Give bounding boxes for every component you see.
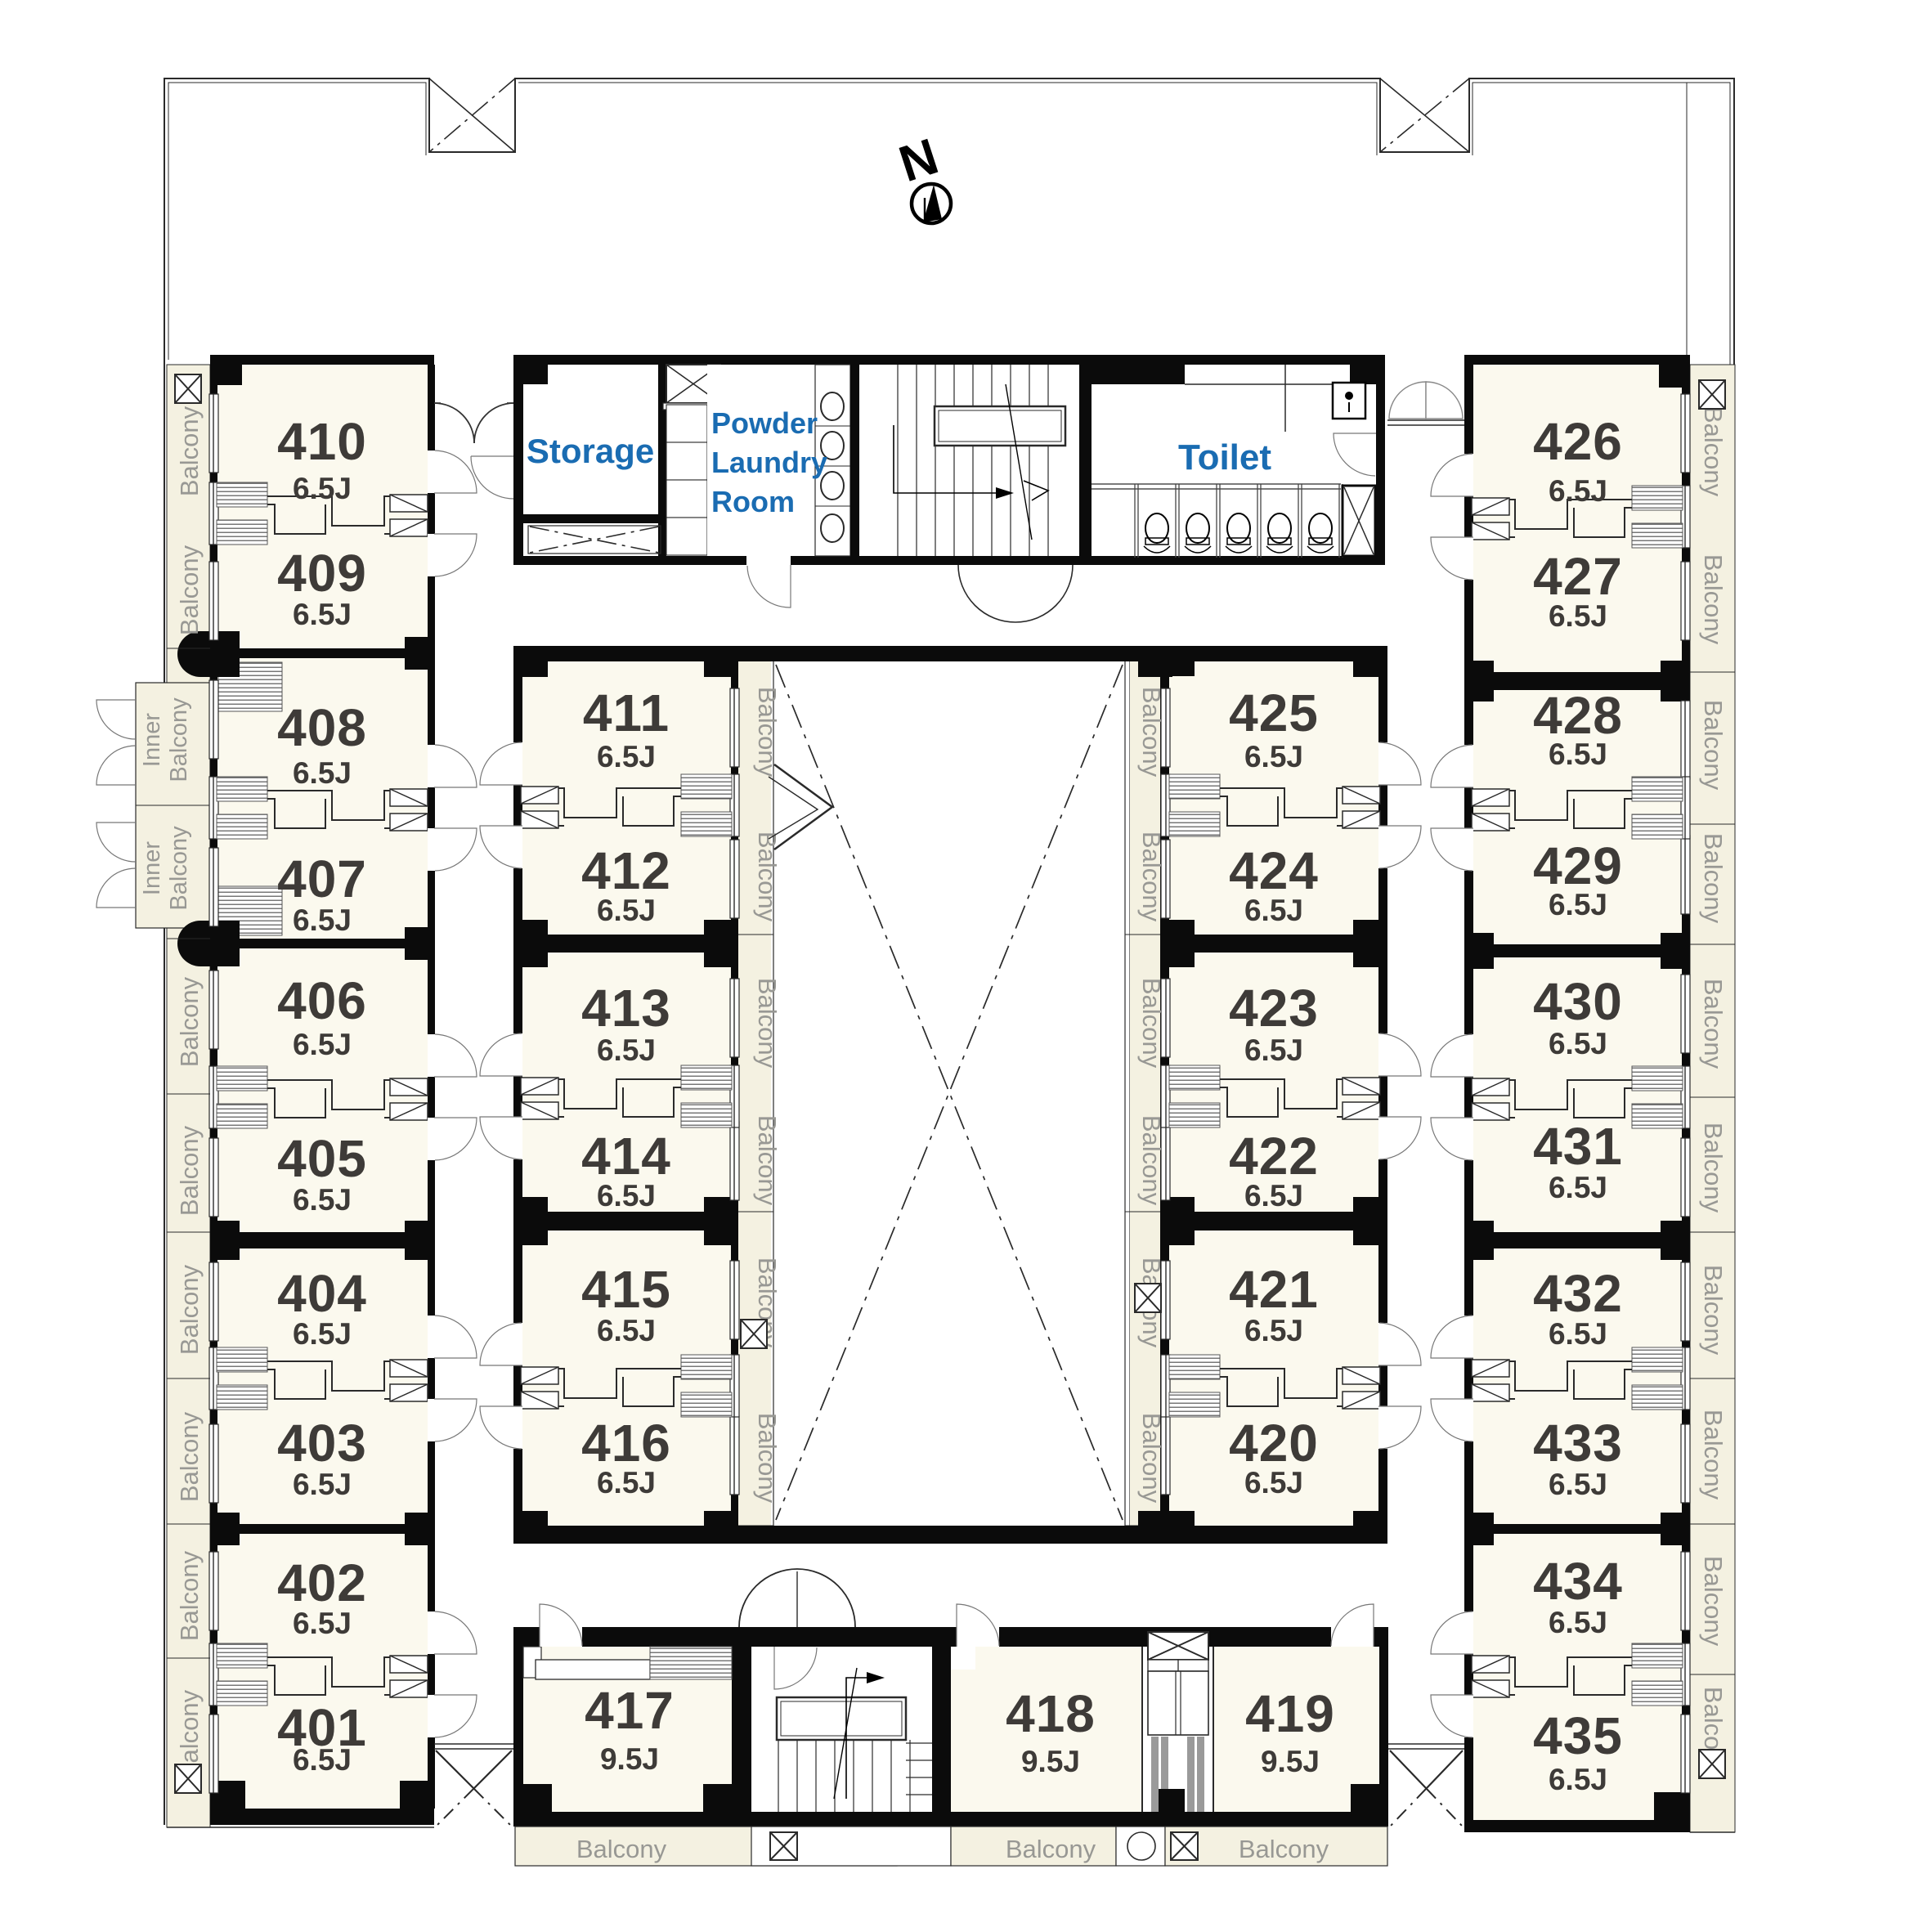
- svg-text:430: 430: [1533, 972, 1623, 1031]
- svg-text:Balcony: Balcony: [1699, 979, 1728, 1069]
- svg-text:Balcony: Balcony: [1699, 1123, 1728, 1213]
- svg-text:423: 423: [1229, 979, 1319, 1038]
- svg-text:Balcony: Balcony: [1699, 700, 1728, 791]
- svg-text:418: 418: [1006, 1684, 1096, 1743]
- svg-text:420: 420: [1229, 1414, 1319, 1473]
- svg-text:Inner: Inner: [139, 713, 165, 767]
- svg-text:407: 407: [277, 849, 367, 908]
- svg-text:426: 426: [1533, 412, 1623, 471]
- svg-text:6.5J: 6.5J: [1549, 888, 1607, 921]
- svg-text:6.5J: 6.5J: [1244, 740, 1303, 773]
- svg-text:Toilet: Toilet: [1178, 437, 1271, 477]
- svg-text:416: 416: [581, 1414, 671, 1473]
- svg-text:Balcony: Balcony: [175, 1125, 204, 1216]
- svg-text:429: 429: [1533, 836, 1623, 895]
- svg-text:6.5J: 6.5J: [597, 1179, 656, 1213]
- svg-text:6.5J: 6.5J: [293, 1468, 352, 1501]
- svg-text:Balcony: Balcony: [1137, 978, 1166, 1069]
- svg-text:405: 405: [277, 1129, 367, 1188]
- svg-text:424: 424: [1229, 841, 1319, 900]
- svg-text:Room: Room: [711, 485, 795, 518]
- svg-text:Balcony: Balcony: [1699, 1556, 1728, 1647]
- svg-text:Balcony: Balcony: [175, 406, 204, 496]
- svg-text:417: 417: [585, 1681, 675, 1740]
- svg-text:6.5J: 6.5J: [1549, 737, 1607, 771]
- svg-text:Balcony: Balcony: [1006, 1835, 1096, 1863]
- svg-text:431: 431: [1533, 1117, 1623, 1176]
- svg-text:6.5J: 6.5J: [597, 740, 656, 773]
- svg-text:6.5J: 6.5J: [1549, 474, 1607, 508]
- svg-text:434: 434: [1533, 1552, 1623, 1611]
- svg-text:425: 425: [1229, 684, 1319, 742]
- svg-text:6.5J: 6.5J: [1244, 1179, 1303, 1213]
- svg-text:406: 406: [277, 971, 367, 1030]
- svg-text:6.5J: 6.5J: [597, 1466, 656, 1499]
- svg-text:6.5J: 6.5J: [1549, 599, 1607, 633]
- svg-text:Balcony: Balcony: [166, 826, 192, 911]
- svg-text:Storage: Storage: [527, 432, 654, 470]
- svg-text:410: 410: [277, 412, 367, 471]
- svg-text:415: 415: [581, 1260, 671, 1319]
- svg-text:6.5J: 6.5J: [293, 1183, 352, 1217]
- svg-text:433: 433: [1533, 1414, 1623, 1473]
- svg-text:6.5J: 6.5J: [1549, 1763, 1607, 1796]
- svg-text:Balcony: Balcony: [1239, 1835, 1329, 1863]
- svg-text:Balcony: Balcony: [753, 978, 782, 1069]
- svg-text:6.5J: 6.5J: [293, 1607, 352, 1640]
- svg-text:Balcony: Balcony: [175, 1550, 204, 1641]
- svg-text:Balcony: Balcony: [1137, 687, 1166, 778]
- svg-text:422: 422: [1229, 1127, 1319, 1186]
- svg-text:Balcony: Balcony: [1699, 554, 1728, 645]
- svg-text:Balcony: Balcony: [175, 1264, 204, 1355]
- svg-text:Balcony: Balcony: [1699, 1410, 1728, 1500]
- svg-text:Balcony: Balcony: [576, 1835, 667, 1863]
- svg-text:Balcony: Balcony: [1699, 406, 1728, 497]
- svg-text:6.5J: 6.5J: [293, 1317, 352, 1351]
- svg-text:Balcony: Balcony: [166, 697, 192, 782]
- svg-text:Balcony: Balcony: [753, 1115, 782, 1206]
- svg-text:414: 414: [581, 1127, 671, 1186]
- svg-text:6.5J: 6.5J: [597, 1314, 656, 1347]
- svg-text:6.5J: 6.5J: [597, 1033, 656, 1067]
- svg-text:6.5J: 6.5J: [293, 1028, 352, 1061]
- svg-text:6.5J: 6.5J: [293, 472, 352, 505]
- svg-text:6.5J: 6.5J: [1549, 1468, 1607, 1501]
- svg-text:Balcony: Balcony: [175, 1411, 204, 1502]
- svg-text:411: 411: [583, 684, 670, 742]
- svg-text:6.5J: 6.5J: [1244, 1314, 1303, 1347]
- svg-text:Balcony: Balcony: [753, 1413, 782, 1504]
- svg-text:Balcony: Balcony: [1137, 832, 1166, 922]
- svg-text:Balcony: Balcony: [1137, 1413, 1166, 1504]
- svg-text:6.5J: 6.5J: [1549, 1171, 1607, 1204]
- svg-text:403: 403: [277, 1414, 367, 1473]
- svg-text:427: 427: [1533, 547, 1623, 606]
- svg-text:9.5J: 9.5J: [600, 1742, 659, 1776]
- svg-text:6.5J: 6.5J: [1549, 1606, 1607, 1639]
- svg-text:Balcony: Balcony: [753, 687, 782, 778]
- svg-text:409: 409: [277, 544, 367, 603]
- svg-text:Balcony: Balcony: [175, 545, 204, 635]
- svg-text:Balcony: Balcony: [175, 976, 204, 1067]
- svg-text:6.5J: 6.5J: [293, 756, 352, 790]
- svg-text:Balcony: Balcony: [1137, 1115, 1166, 1206]
- svg-text:428: 428: [1533, 686, 1623, 745]
- svg-text:Balcony: Balcony: [753, 832, 782, 922]
- svg-text:421: 421: [1229, 1260, 1319, 1319]
- svg-text:6.5J: 6.5J: [293, 598, 352, 631]
- svg-text:404: 404: [277, 1264, 367, 1323]
- svg-text:435: 435: [1533, 1706, 1623, 1765]
- svg-text:6.5J: 6.5J: [1549, 1027, 1607, 1060]
- svg-text:6.5J: 6.5J: [1244, 894, 1303, 927]
- svg-text:419: 419: [1245, 1684, 1335, 1743]
- svg-text:6.5J: 6.5J: [1549, 1317, 1607, 1351]
- svg-text:Inner: Inner: [139, 841, 165, 895]
- svg-text:6.5J: 6.5J: [1244, 1466, 1303, 1499]
- svg-text:402: 402: [277, 1553, 367, 1612]
- svg-text:Balcony: Balcony: [1699, 833, 1728, 924]
- svg-text:432: 432: [1533, 1264, 1623, 1323]
- svg-text:9.5J: 9.5J: [1261, 1745, 1320, 1778]
- svg-text:6.5J: 6.5J: [1244, 1033, 1303, 1067]
- svg-text:9.5J: 9.5J: [1021, 1745, 1080, 1778]
- svg-text:Balcony: Balcony: [1699, 1265, 1728, 1356]
- svg-text:6.5J: 6.5J: [597, 894, 656, 927]
- svg-text:412: 412: [581, 841, 671, 900]
- svg-text:Laundry: Laundry: [711, 446, 827, 479]
- svg-text:6.5J: 6.5J: [293, 903, 352, 937]
- svg-text:408: 408: [277, 698, 367, 757]
- svg-text:6.5J: 6.5J: [293, 1743, 352, 1777]
- svg-text:Powder: Powder: [711, 406, 818, 440]
- svg-text:413: 413: [581, 979, 671, 1038]
